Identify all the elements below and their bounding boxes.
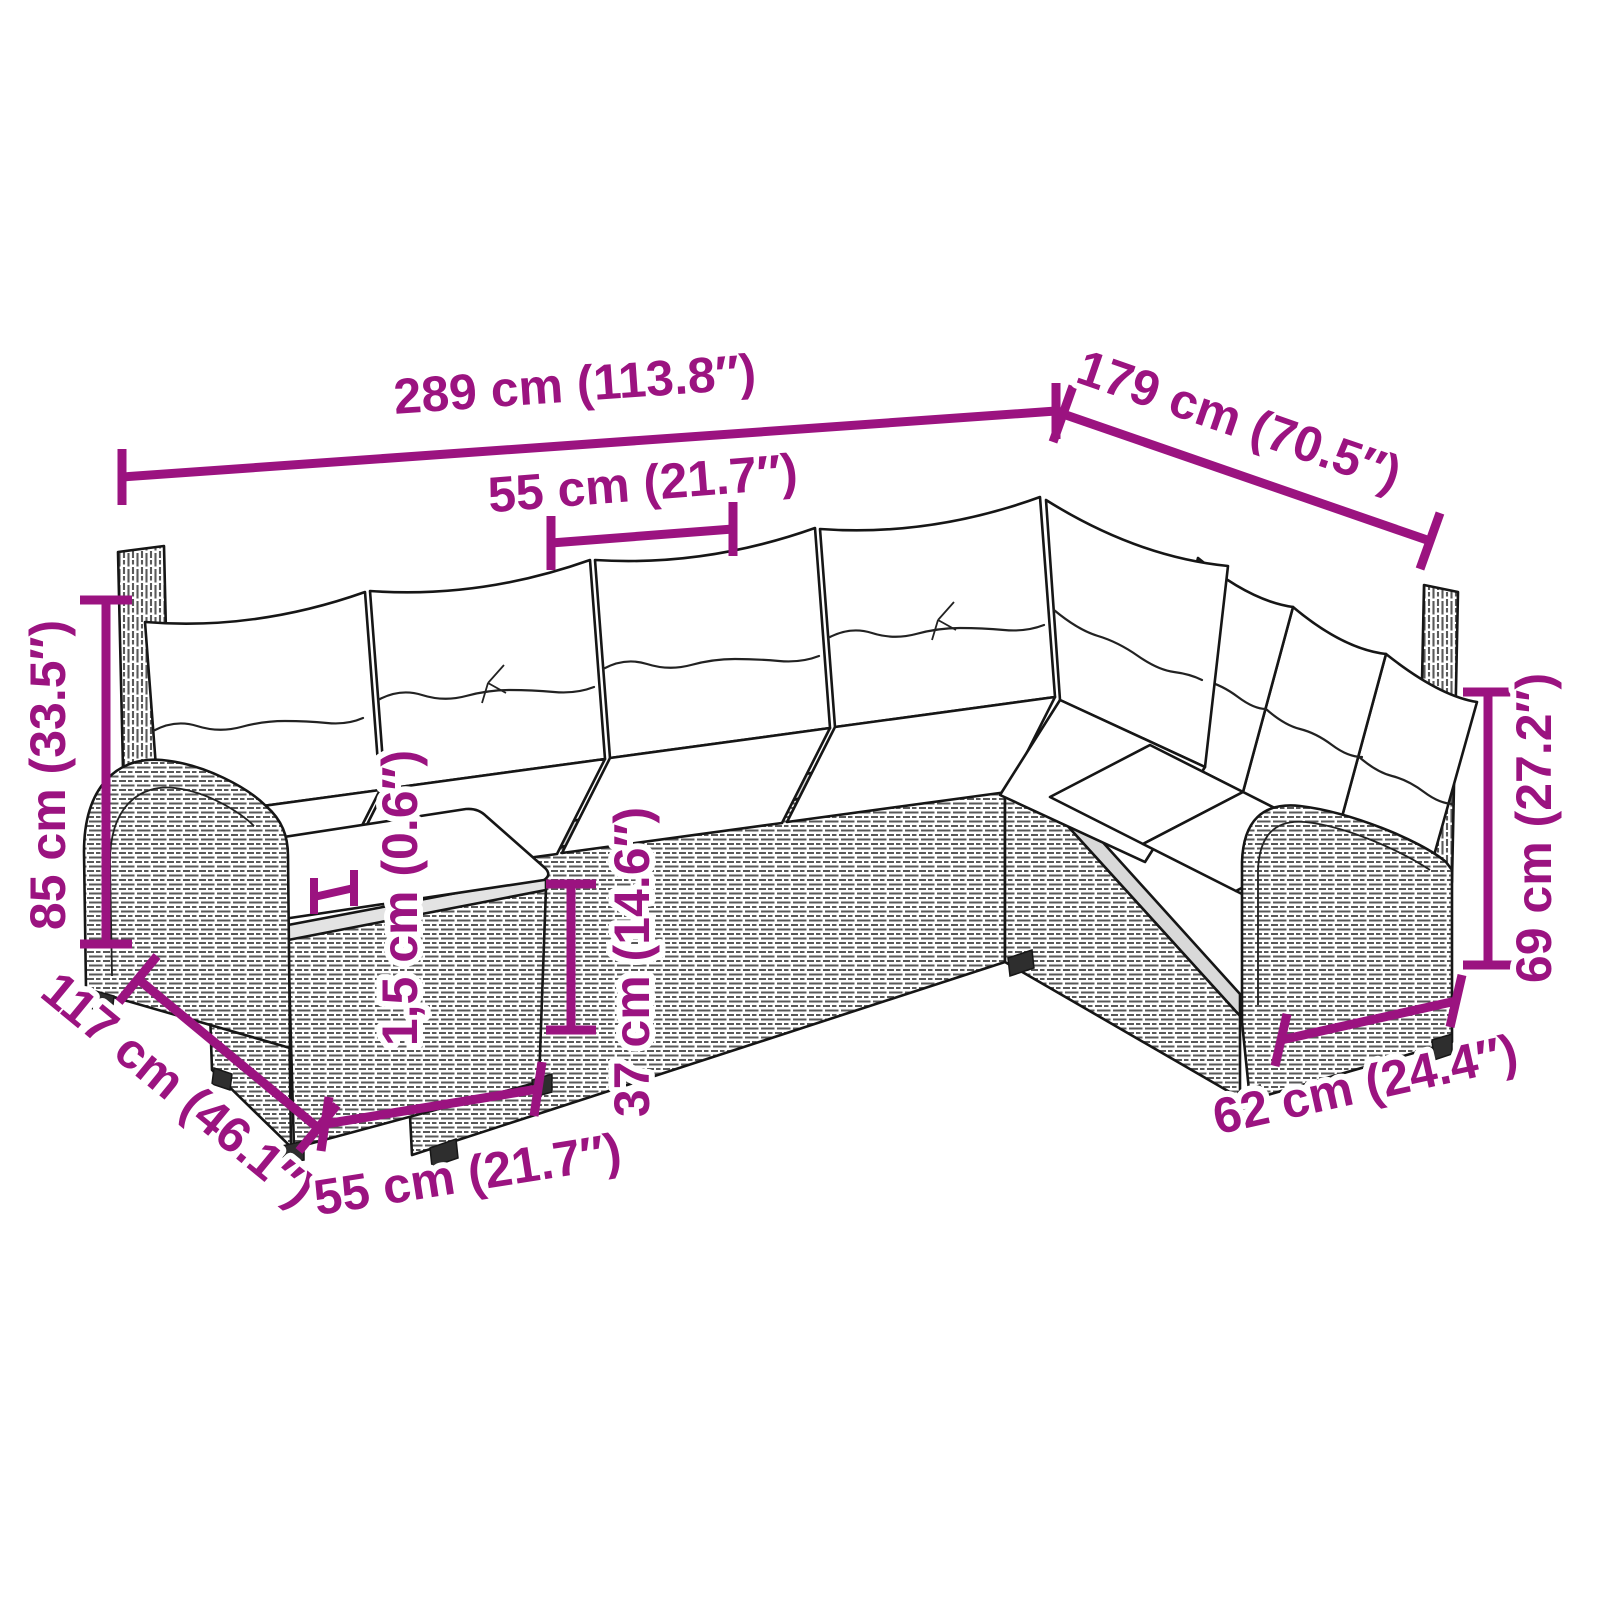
dimension-label: 37 cm (14.6″) (604, 807, 660, 1117)
back-cushion (595, 528, 830, 758)
dimension-label: 85 cm (33.5″) (20, 620, 76, 930)
back-cushion (820, 497, 1055, 727)
sofa-dimension-illustration: 289 cm (113.8″) 179 cm (70.5″) 55 cm (21… (0, 0, 1600, 1600)
dimension-line (551, 529, 733, 543)
dimension-label: 69 cm (27.2″) (1506, 673, 1562, 983)
dimension-label: 289 cm (113.8″) (392, 344, 758, 425)
dimension-label: 55 cm (21.7″) (486, 443, 800, 523)
dimension-label: 1,5 cm (0.6″) (372, 750, 428, 1046)
dimension-armrest-height: 69 cm (27.2″) (1463, 673, 1562, 983)
sofa-illustration (84, 497, 1477, 1167)
dimension-diagram: 289 cm (113.8″) 179 cm (70.5″) 55 cm (21… (0, 0, 1600, 1600)
